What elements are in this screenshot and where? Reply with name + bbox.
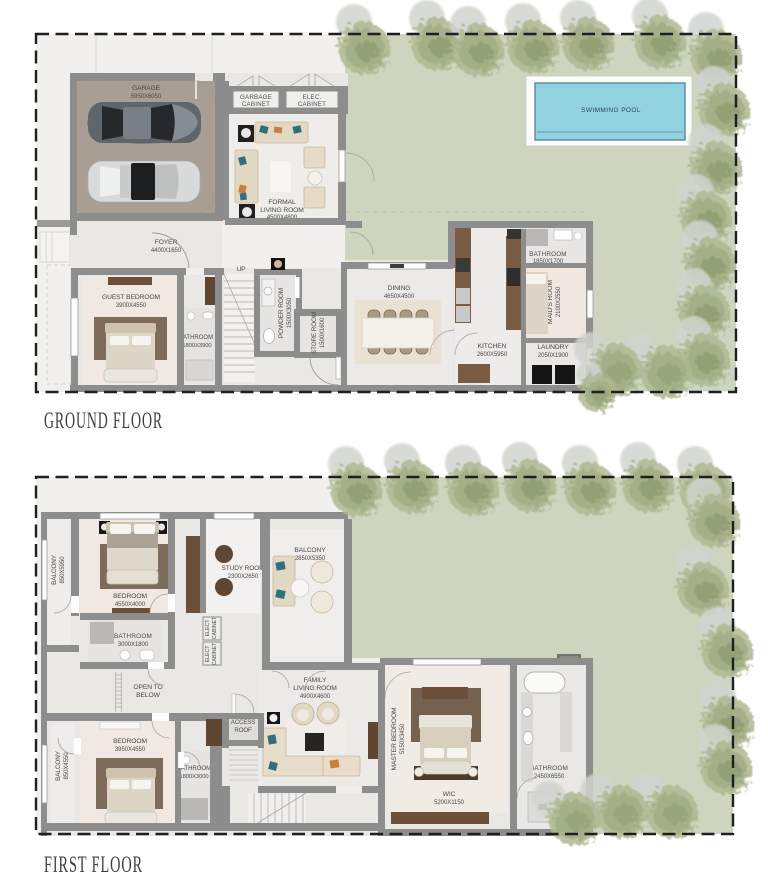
svg-text:ACCESS: ACCESS (231, 719, 255, 726)
svg-text:BELOW: BELOW (136, 692, 160, 699)
svg-text:CABINET: CABINET (212, 642, 218, 665)
svg-text:POWDER ROOM: POWDER ROOM (278, 288, 285, 338)
svg-text:BEDROOM: BEDROOM (113, 738, 147, 745)
svg-text:ROOF: ROOF (234, 727, 252, 734)
svg-text:1800X3000: 1800X3000 (179, 774, 208, 780)
svg-text:850X5950: 850X5950 (60, 556, 66, 584)
svg-text:BEDROOM: BEDROOM (113, 593, 147, 600)
svg-text:BATHROOM: BATHROOM (179, 335, 213, 341)
svg-text:LAUNDRY: LAUNDRY (537, 344, 569, 351)
svg-text:SWIMMING POOL: SWIMMING POOL (581, 107, 641, 114)
svg-text:1500X1600: 1500X1600 (320, 317, 326, 348)
svg-text:GUEST BEDROOM: GUEST BEDROOM (102, 294, 161, 301)
svg-text:5200X1150: 5200X1150 (434, 800, 465, 806)
svg-text:4900X4600: 4900X4600 (300, 694, 331, 700)
svg-text:OPEN TO: OPEN TO (133, 684, 162, 691)
svg-text:CABINET: CABINET (242, 101, 270, 108)
svg-text:WIC: WIC (443, 791, 456, 798)
svg-text:2450X6550: 2450X6550 (534, 774, 565, 780)
svg-text:2050X1900: 2050X1900 (538, 353, 569, 359)
svg-text:GROUND FLOOR: GROUND FLOOR (44, 408, 163, 433)
svg-text:5150X3450: 5150X3450 (400, 723, 406, 754)
svg-text:MASTER BEDROOM: MASTER BEDROOM (391, 707, 398, 770)
svg-text:LIVING ROOM: LIVING ROOM (293, 685, 337, 692)
svg-text:GARBAGE: GARBAGE (240, 94, 272, 101)
svg-text:4550X4000: 4550X4000 (115, 602, 146, 608)
svg-text:GARAGE: GARAGE (132, 85, 161, 92)
svg-text:STUDY ROOM: STUDY ROOM (222, 565, 265, 572)
svg-text:CABINET: CABINET (298, 101, 326, 108)
svg-text:FAMILY: FAMILY (304, 677, 327, 684)
svg-text:STORE ROOM: STORE ROOM (311, 312, 318, 354)
svg-text:MAID'S ROOM: MAID'S ROOM (547, 279, 554, 324)
svg-text:BATHROOM: BATHROOM (530, 765, 568, 772)
svg-text:BATHROOM: BATHROOM (529, 251, 567, 258)
svg-text:BALCONY: BALCONY (51, 554, 58, 585)
svg-text:CABINET: CABINET (212, 616, 218, 639)
svg-text:UP: UP (236, 266, 246, 273)
svg-text:3000X1800: 3000X1800 (118, 642, 149, 648)
svg-text:5950X6050: 5950X6050 (131, 94, 162, 100)
svg-text:ELECT: ELECT (205, 645, 211, 663)
svg-text:BALCONY: BALCONY (55, 750, 62, 781)
svg-text:2600X5950: 2600X5950 (477, 352, 508, 358)
svg-text:FIRST FLOOR: FIRST FLOOR (44, 852, 143, 877)
svg-text:2100X2550: 2100X2550 (556, 286, 562, 317)
svg-text:850X4550: 850X4550 (64, 752, 70, 780)
svg-text:LIVING ROOM: LIVING ROOM (260, 207, 304, 214)
svg-text:3900X4550: 3900X4550 (116, 303, 147, 309)
svg-text:1800X3900: 1800X3900 (182, 343, 211, 349)
svg-text:2300X2650: 2300X2650 (228, 574, 259, 580)
svg-text:BALCONY: BALCONY (294, 547, 326, 554)
svg-text:4400X1650: 4400X1650 (151, 248, 182, 254)
svg-text:1500X3050: 1500X3050 (287, 297, 293, 328)
svg-text:ELEC.: ELEC. (303, 94, 322, 101)
svg-text:BATHROOM: BATHROOM (114, 633, 152, 640)
svg-text:4650X4500: 4650X4500 (384, 294, 415, 300)
svg-text:DINING: DINING (388, 285, 411, 292)
svg-text:KITCHEN: KITCHEN (478, 343, 507, 350)
svg-text:FORMAL: FORMAL (268, 199, 296, 206)
svg-text:3950X4550: 3950X4550 (115, 747, 146, 753)
svg-text:ELECT: ELECT (205, 619, 211, 637)
